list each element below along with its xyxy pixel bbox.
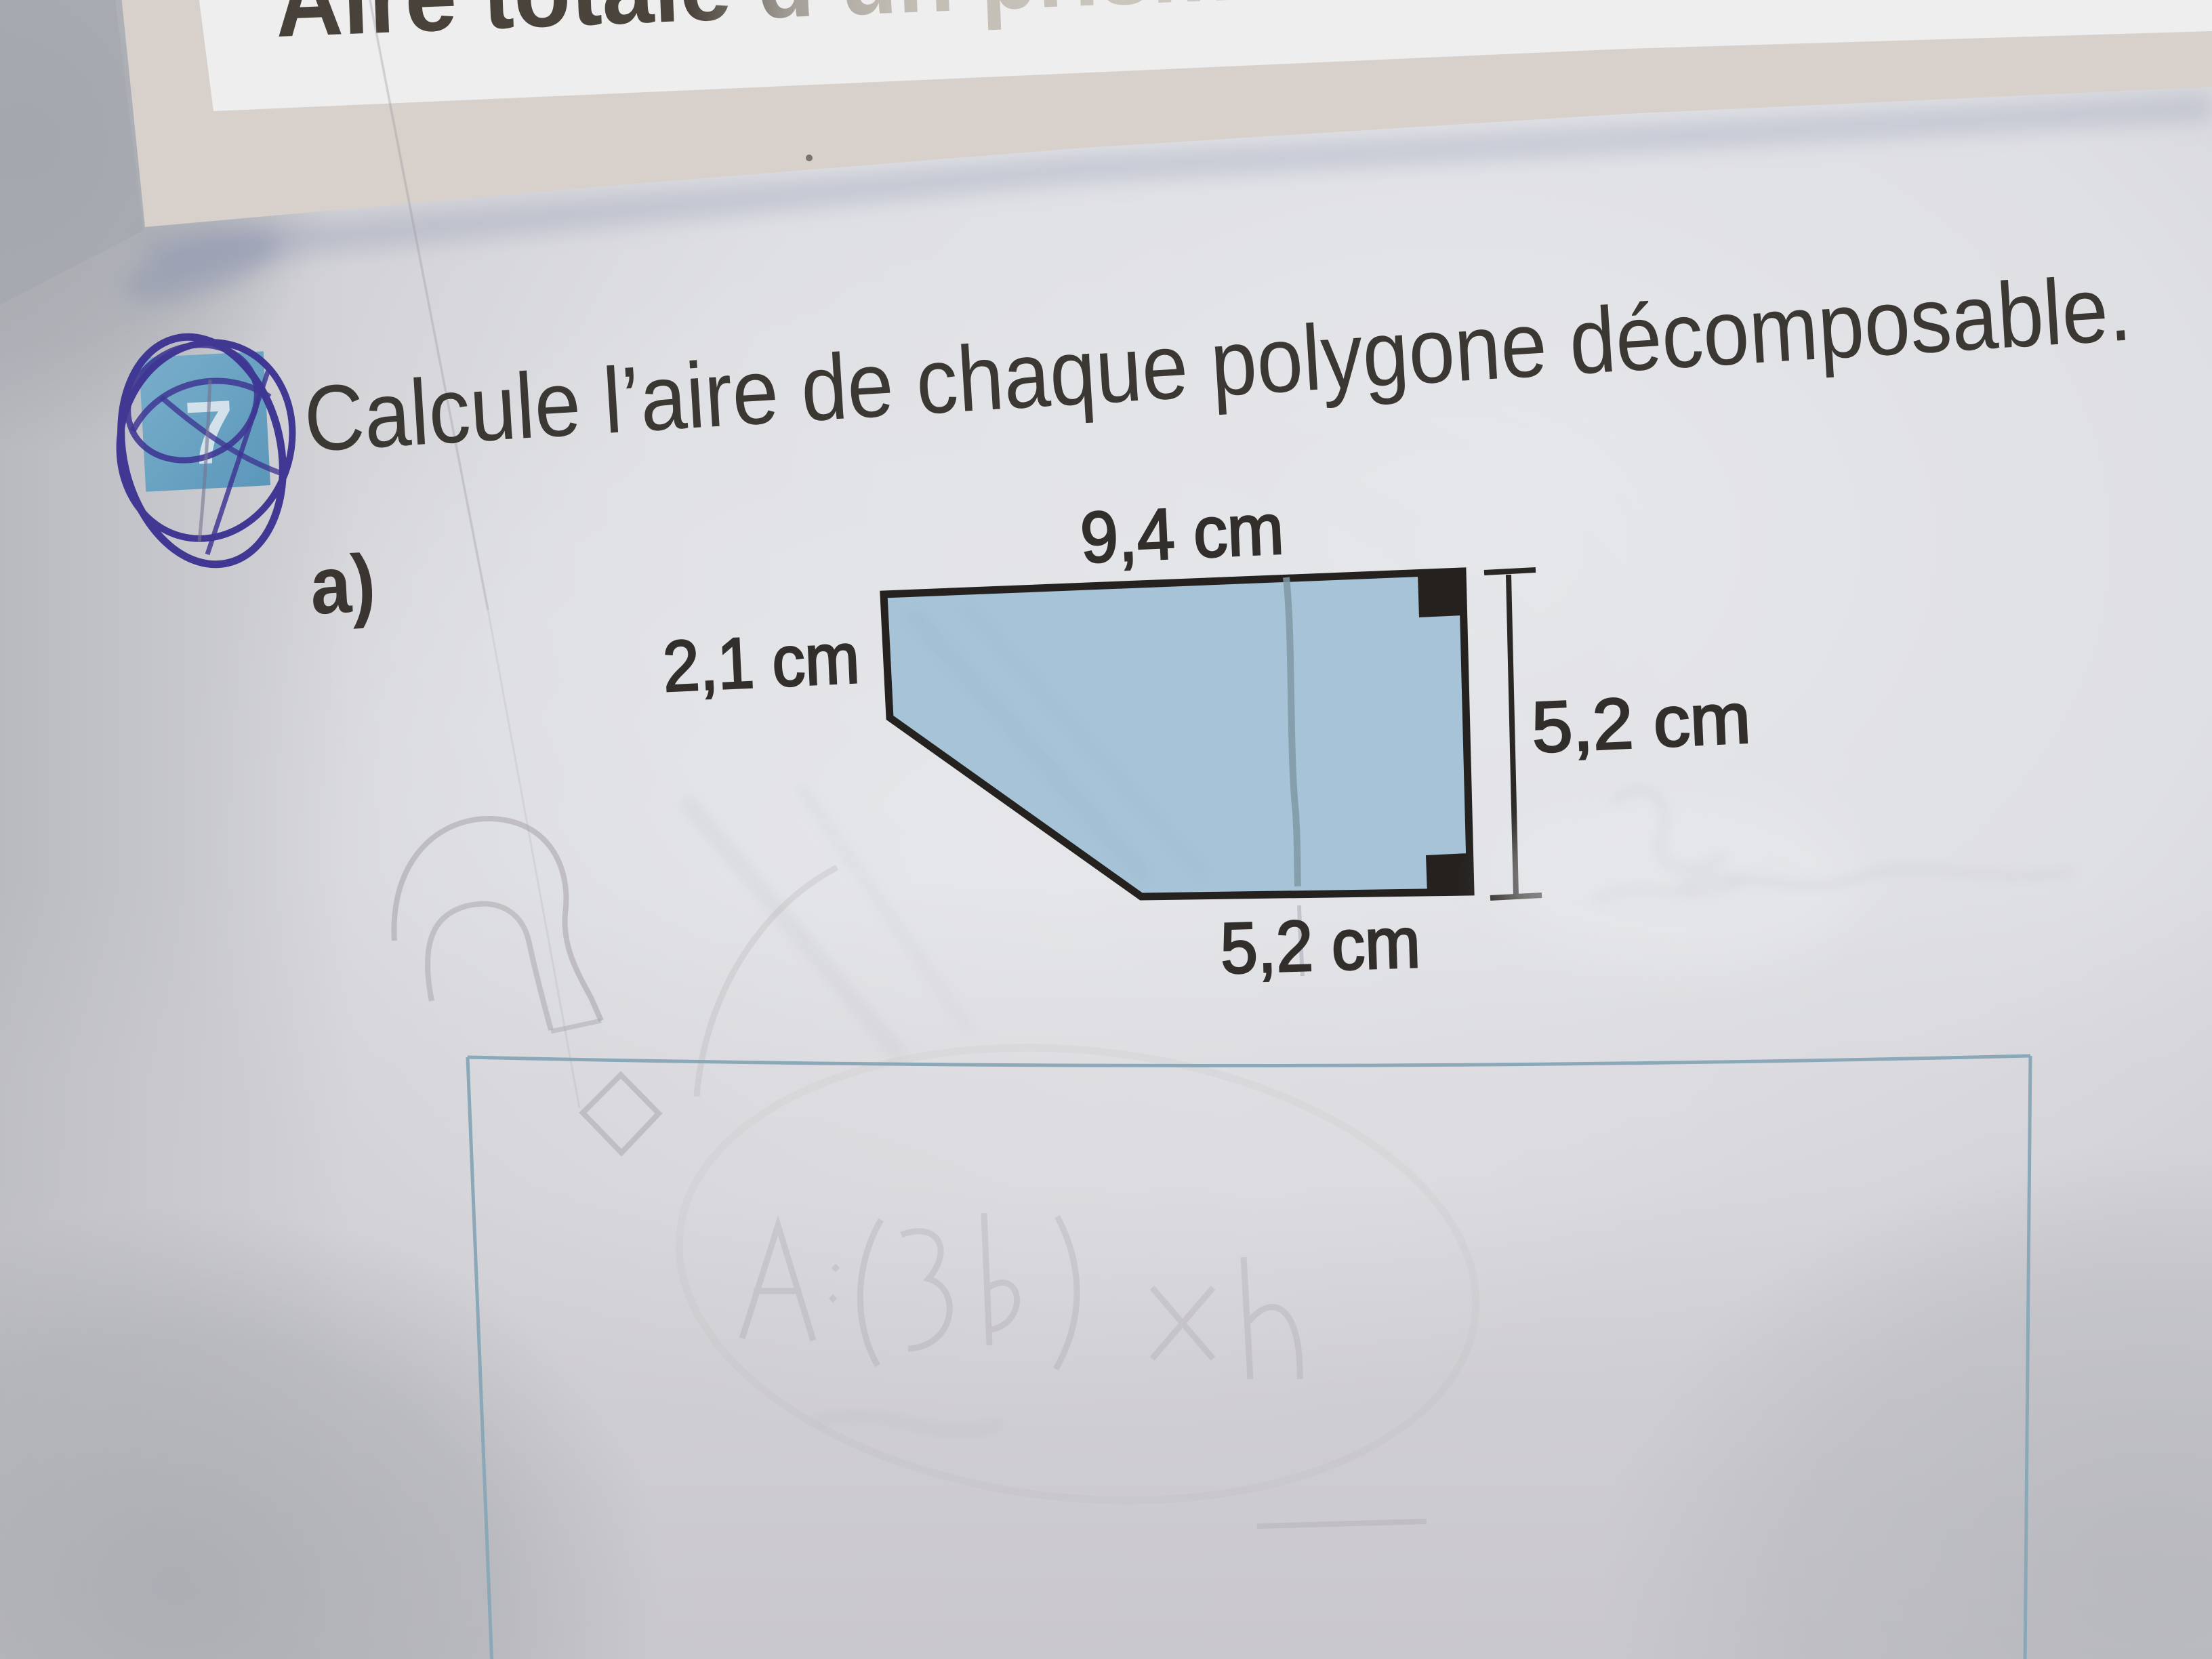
svg-text:a): a) [308,537,377,632]
svg-text:5,2 cm: 5,2 cm [1530,678,1753,768]
svg-text:9,4 cm: 9,4 cm [1079,489,1286,577]
svg-text:5,2 cm: 5,2 cm [1219,903,1422,989]
svg-text:2,1 cm: 2,1 cm [661,618,861,707]
